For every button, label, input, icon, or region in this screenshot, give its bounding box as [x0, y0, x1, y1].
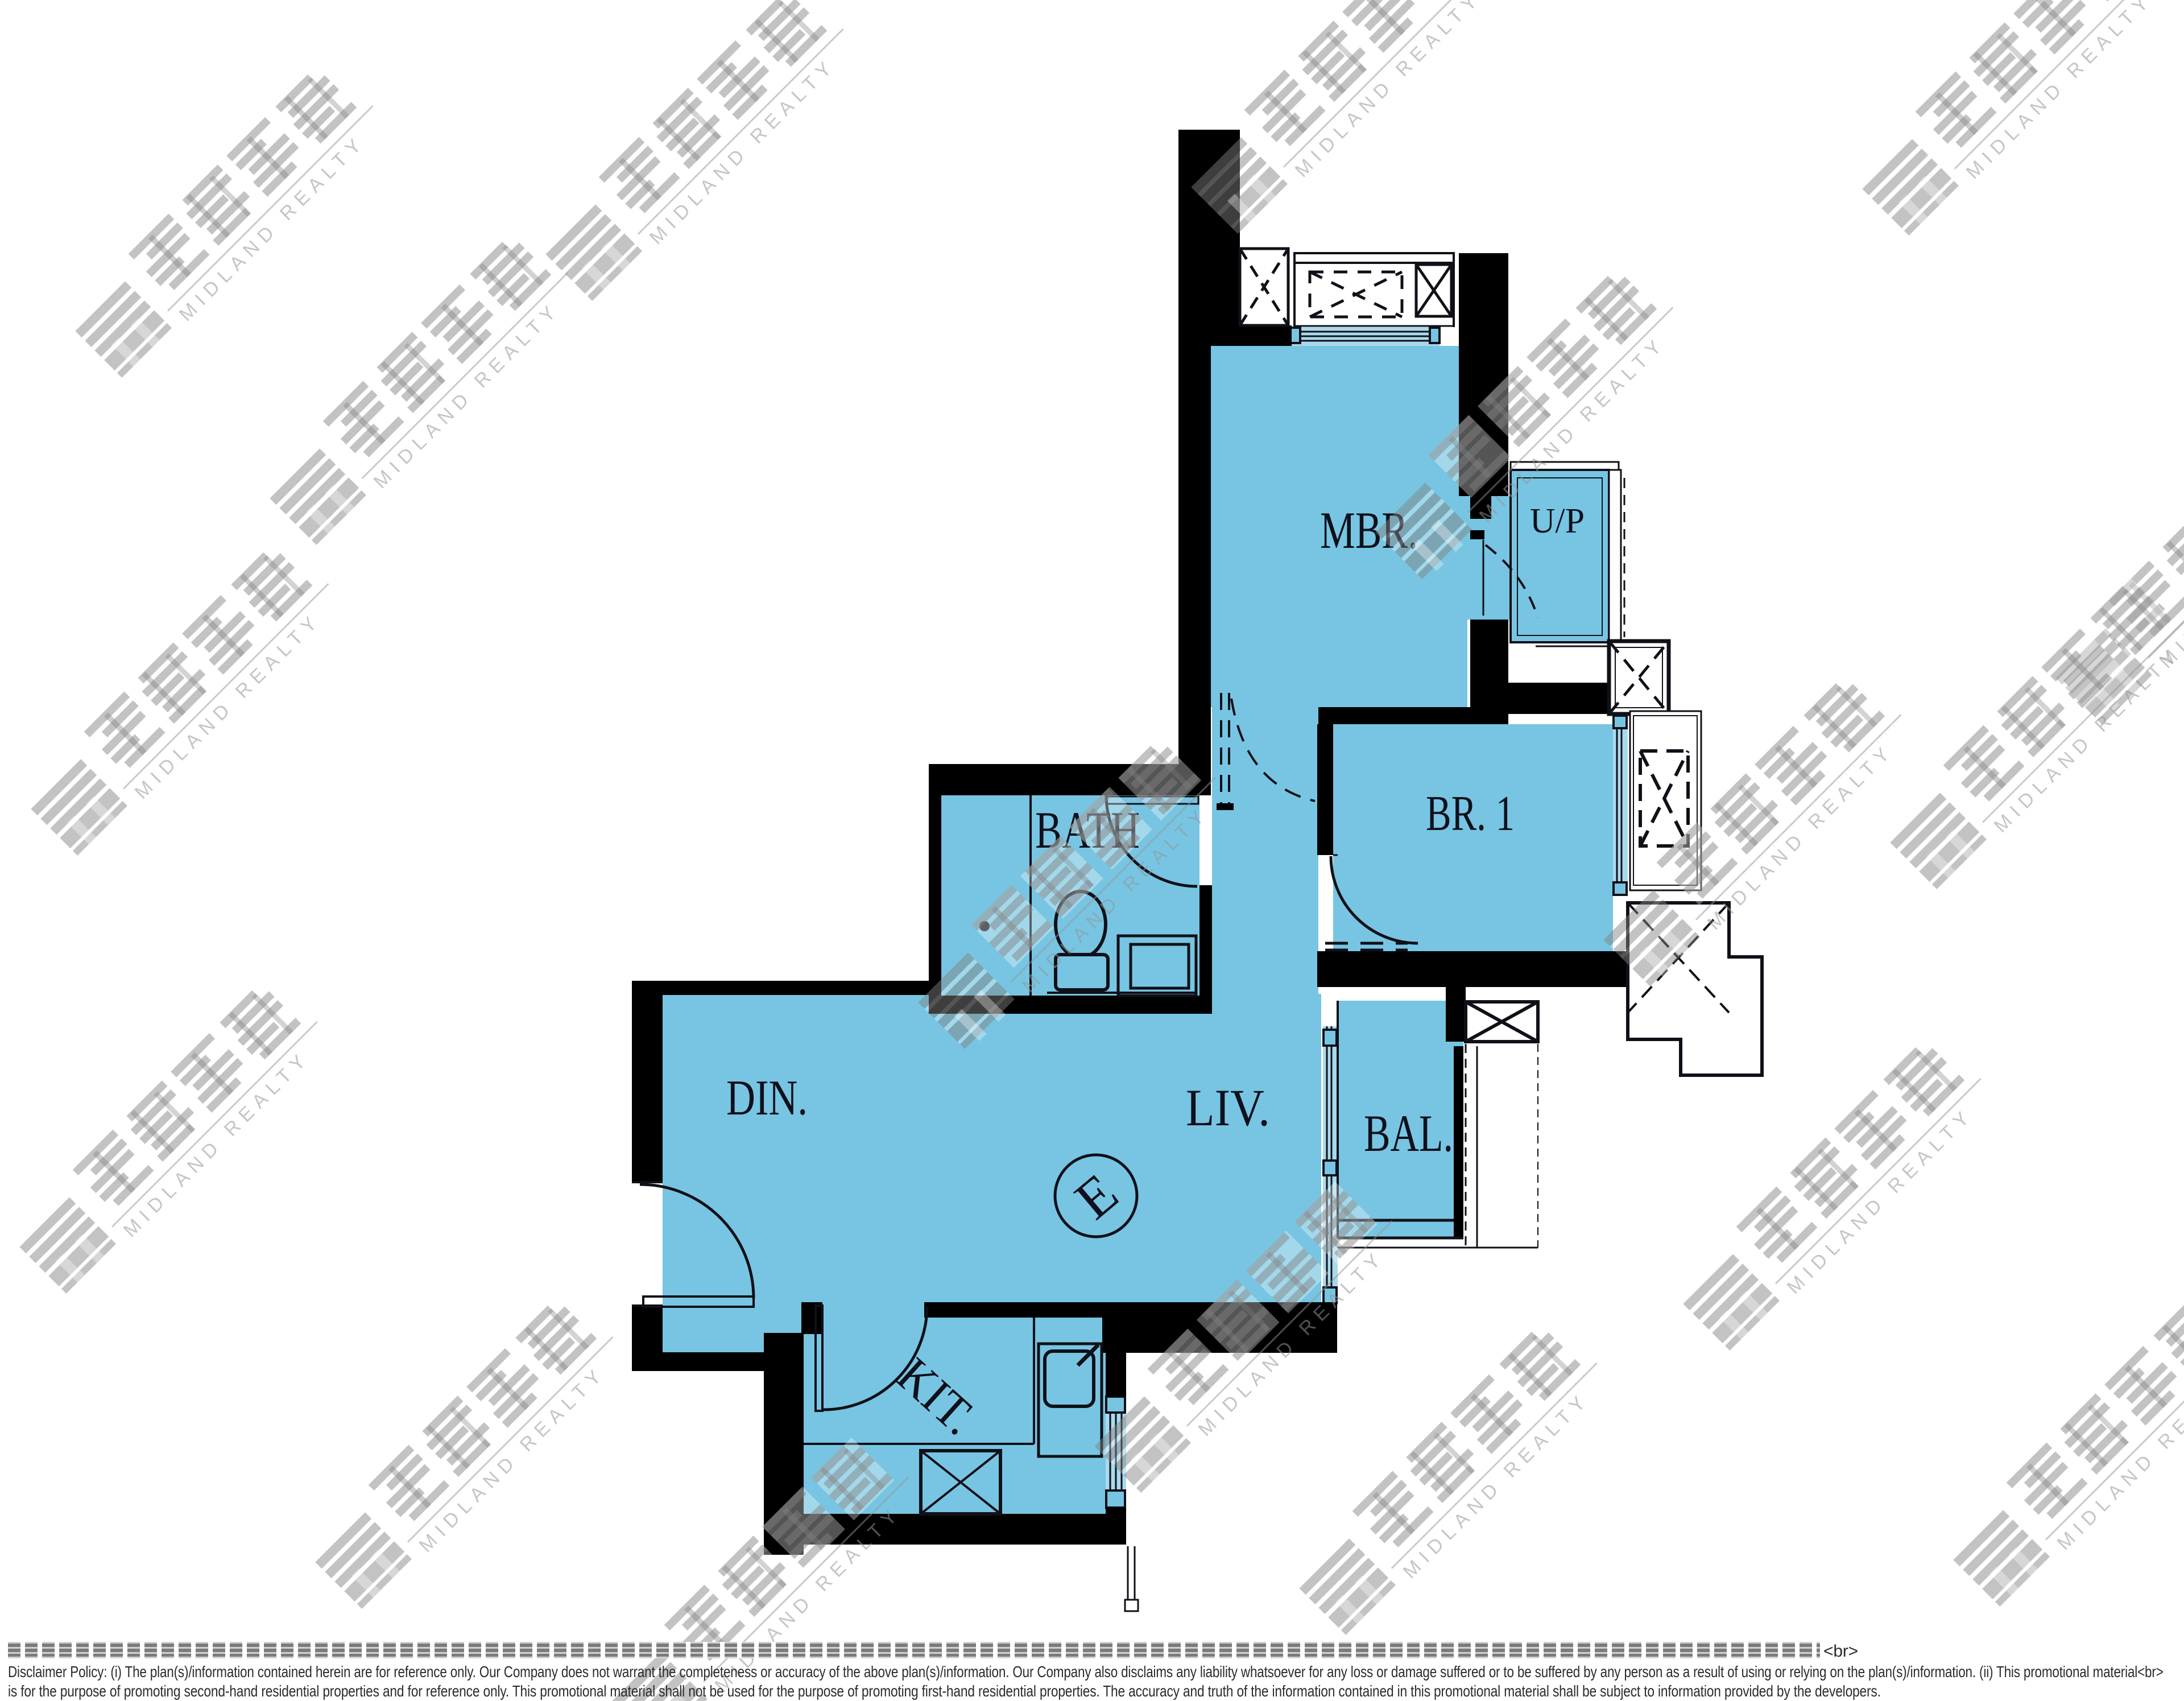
svg-text:BR. 1: BR. 1 [1426, 786, 1515, 841]
svg-text:U/P: U/P [1530, 502, 1585, 540]
svg-text:BAL.: BAL. [1364, 1104, 1453, 1162]
svg-text:DIN.: DIN. [726, 1071, 808, 1126]
svg-text:LIV.: LIV. [1186, 1079, 1270, 1137]
